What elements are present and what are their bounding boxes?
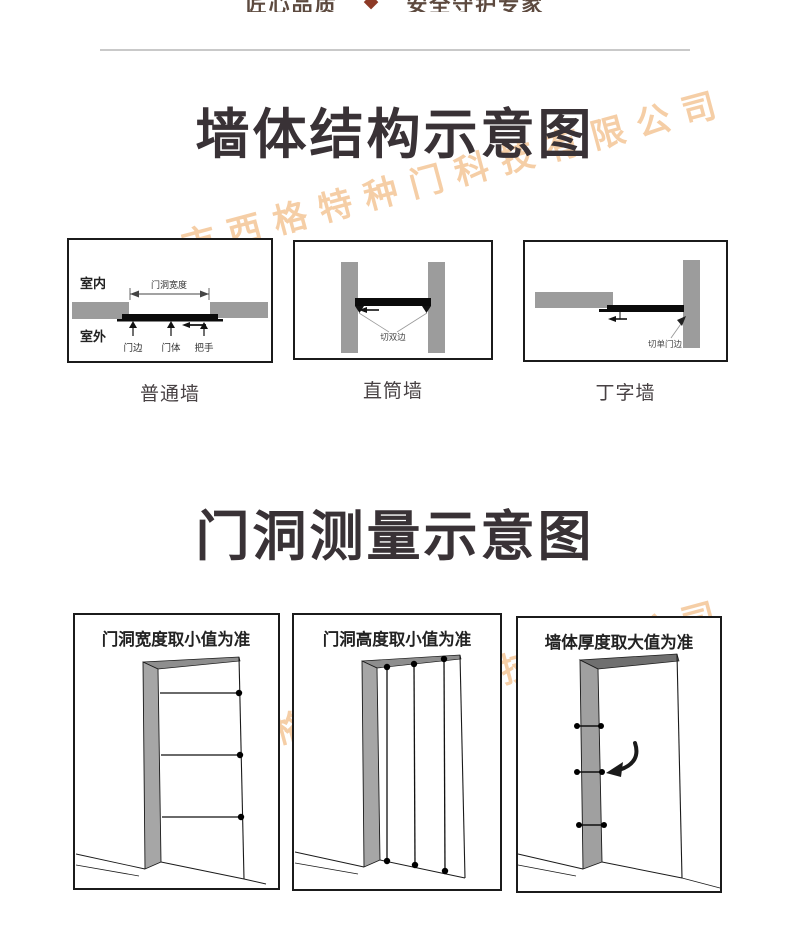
measure-dot <box>412 862 418 868</box>
diagram-measure-width: 门洞宽度取小值为准 <box>73 613 280 890</box>
wall-column-right <box>428 262 445 353</box>
measure-dot <box>236 690 242 696</box>
diagram-measure-thickness: 墙体厚度取大值为准 <box>516 616 722 893</box>
header-right-text: 安全守护专家 <box>406 0 544 12</box>
measure-dot <box>384 664 390 670</box>
cut-both-edges-label: 切双边 <box>380 332 406 342</box>
diagram-tee-wall: 切单门边 丁字墙 <box>523 240 728 405</box>
section-divider <box>100 49 690 51</box>
measure-dot <box>441 656 447 662</box>
diagram-border <box>74 614 279 889</box>
measure-dot <box>601 822 607 828</box>
header-left-text: 匠心品质 <box>246 0 338 12</box>
normal-wall-drawing: 室内 室外 门洞宽度 门边 门体 把手 <box>67 238 273 363</box>
diagram-normal-wall: 室内 室外 门洞宽度 门边 门体 把手 普通墙 <box>67 238 273 406</box>
wall-right <box>210 302 268 318</box>
measure-height-drawing: 门洞高度取小值为准 <box>292 613 502 891</box>
caption-normal-wall: 普通墙 <box>67 379 273 406</box>
wall-column-left <box>341 262 358 353</box>
opening-measure-title: 门洞测量示意图 <box>0 508 790 566</box>
measure-dot <box>237 752 243 758</box>
door-body-label: 门体 <box>161 342 181 354</box>
header-slogan-clipped: 匠心品质 ◆ 安全守护专家 <box>0 0 790 12</box>
width-dim-label: 门洞宽度 <box>151 279 187 290</box>
caption-tee-wall: 丁字墙 <box>523 378 728 405</box>
door-panel <box>607 305 684 312</box>
indoor-label: 室内 <box>80 276 106 291</box>
diagram-border <box>293 614 501 890</box>
diagram-straight-wall: 切双边 直筒墙 <box>293 240 493 403</box>
diagram-measure-height: 门洞高度取小值为准 <box>292 613 502 891</box>
wall-left <box>72 302 129 319</box>
measure-width-caption: 门洞宽度取小值为准 <box>102 629 251 649</box>
product-detail-page: 佛山市西格特种门科技有限公司 佛山市西格特种门科技有限公司 匠心品质 ◆ 安全守… <box>0 0 790 933</box>
door-panel-step <box>599 309 611 312</box>
straight-wall-drawing: 切双边 <box>293 240 493 360</box>
measure-dot <box>442 868 448 874</box>
handle-label: 把手 <box>194 342 214 354</box>
measure-dot <box>599 769 605 775</box>
frame-jamb <box>580 660 602 869</box>
measure-dot <box>598 723 604 729</box>
measure-thickness-caption: 墙体厚度取大值为准 <box>545 632 694 652</box>
measure-dot <box>384 858 390 864</box>
door-edge-label: 门边 <box>123 342 143 354</box>
wall-horizontal <box>535 292 613 308</box>
door-panel <box>355 298 431 306</box>
measure-dot <box>574 723 580 729</box>
wall-structure-title: 墙体结构示意图 <box>0 106 790 164</box>
caption-straight-wall: 直筒墙 <box>293 376 493 403</box>
measure-width-drawing: 门洞宽度取小值为准 <box>73 613 280 890</box>
outdoor-label: 室外 <box>80 329 106 344</box>
measure-dot <box>574 769 580 775</box>
measure-dot <box>576 822 582 828</box>
tee-wall-drawing: 切单门边 <box>523 240 728 362</box>
measure-thickness-drawing: 墙体厚度取大值为准 <box>516 616 722 893</box>
brand-emblem-icon: ◆ <box>364 0 381 12</box>
cut-single-edge-label: 切单门边 <box>648 339 683 349</box>
door-track <box>117 319 223 322</box>
measure-dot <box>411 661 417 667</box>
frame-jamb <box>143 662 161 869</box>
measure-height-caption: 门洞高度取小值为准 <box>323 629 472 649</box>
wall-column-right <box>683 260 700 348</box>
measure-dot <box>238 814 244 820</box>
frame-jamb <box>362 661 380 867</box>
